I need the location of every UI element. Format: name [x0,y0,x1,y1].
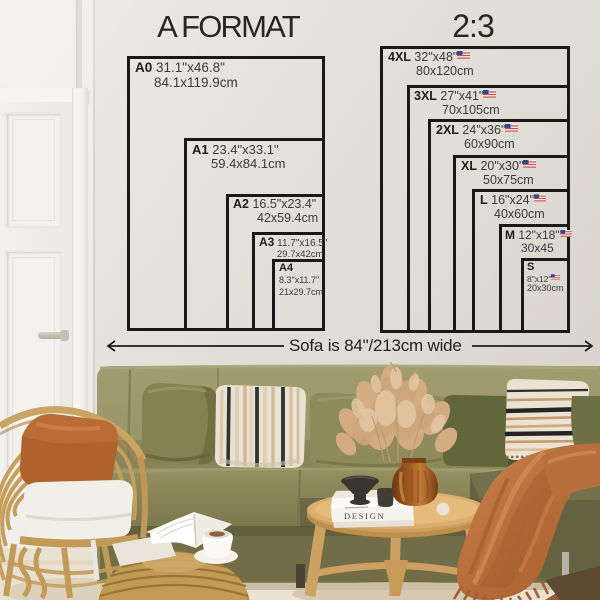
svg-text:DESIGN: DESIGN [344,511,385,521]
